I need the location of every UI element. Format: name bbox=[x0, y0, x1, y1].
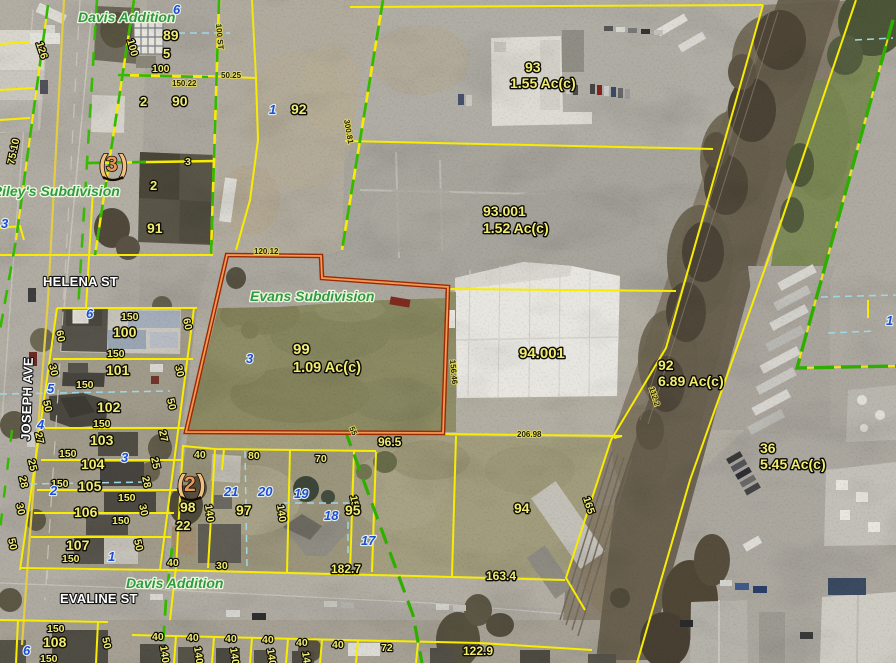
svg-text:107: 107 bbox=[66, 537, 90, 553]
svg-text:91: 91 bbox=[147, 220, 163, 236]
svg-text:96.5: 96.5 bbox=[378, 435, 402, 449]
svg-text:72: 72 bbox=[381, 642, 393, 654]
svg-text:122.9: 122.9 bbox=[463, 644, 493, 658]
svg-text:30: 30 bbox=[216, 560, 228, 572]
svg-text:150: 150 bbox=[112, 515, 130, 527]
svg-text:206.98: 206.98 bbox=[517, 430, 542, 439]
svg-text:140: 140 bbox=[274, 504, 288, 523]
svg-text:17: 17 bbox=[361, 533, 376, 548]
svg-text:105: 105 bbox=[78, 478, 102, 494]
svg-text:100: 100 bbox=[113, 324, 137, 340]
svg-text:2: 2 bbox=[184, 473, 196, 496]
svg-text:Davis Addition: Davis Addition bbox=[126, 575, 224, 591]
svg-text:40: 40 bbox=[225, 633, 237, 645]
svg-text:3: 3 bbox=[246, 351, 254, 366]
svg-text:1: 1 bbox=[269, 102, 276, 117]
svg-text:40: 40 bbox=[194, 449, 206, 461]
svg-text:150: 150 bbox=[93, 418, 111, 430]
svg-text:94.001: 94.001 bbox=[519, 345, 565, 362]
svg-text:150: 150 bbox=[59, 448, 77, 460]
svg-text:90: 90 bbox=[172, 93, 188, 109]
svg-text:150: 150 bbox=[40, 653, 58, 663]
svg-text:20: 20 bbox=[257, 484, 273, 499]
svg-text:102: 102 bbox=[97, 399, 121, 415]
svg-text:92: 92 bbox=[658, 357, 674, 373]
svg-text:3: 3 bbox=[106, 153, 118, 176]
svg-text:120.12: 120.12 bbox=[254, 247, 279, 256]
svg-text:JOSEPH AVE: JOSEPH AVE bbox=[18, 357, 36, 441]
svg-text:50.25: 50.25 bbox=[221, 71, 242, 80]
svg-text:2: 2 bbox=[49, 483, 58, 498]
svg-text:6: 6 bbox=[173, 2, 181, 17]
svg-text:80: 80 bbox=[248, 450, 260, 462]
svg-text:140: 140 bbox=[191, 646, 205, 663]
svg-text:40: 40 bbox=[152, 631, 164, 643]
svg-text:150: 150 bbox=[76, 379, 94, 391]
svg-text:6: 6 bbox=[23, 643, 31, 658]
svg-text:3: 3 bbox=[1, 216, 9, 231]
svg-text:150: 150 bbox=[107, 348, 125, 360]
svg-text:70: 70 bbox=[315, 453, 327, 465]
svg-text:163.4: 163.4 bbox=[486, 569, 516, 583]
svg-text:150: 150 bbox=[118, 492, 136, 504]
svg-text:140: 140 bbox=[299, 651, 313, 663]
svg-text:98: 98 bbox=[180, 499, 196, 515]
svg-text:2: 2 bbox=[140, 94, 147, 109]
svg-text:140: 140 bbox=[227, 647, 241, 663]
svg-text:5: 5 bbox=[47, 381, 55, 396]
svg-text:103: 103 bbox=[90, 432, 114, 448]
svg-text:97: 97 bbox=[236, 502, 252, 518]
svg-text:93: 93 bbox=[525, 59, 541, 75]
svg-text:104: 104 bbox=[81, 456, 105, 472]
svg-text:21: 21 bbox=[223, 484, 238, 499]
svg-text:40: 40 bbox=[167, 557, 179, 569]
svg-text:89: 89 bbox=[163, 27, 179, 43]
svg-text:1: 1 bbox=[886, 313, 893, 328]
svg-text:108: 108 bbox=[43, 634, 67, 650]
svg-text:92: 92 bbox=[291, 101, 307, 117]
svg-text:40: 40 bbox=[296, 637, 308, 649]
svg-text:19: 19 bbox=[294, 486, 309, 501]
svg-text:1.52 Ac(c): 1.52 Ac(c) bbox=[483, 220, 549, 236]
svg-text:94: 94 bbox=[514, 500, 530, 516]
svg-text:140: 140 bbox=[202, 504, 216, 523]
svg-text:95: 95 bbox=[345, 502, 361, 518]
svg-text:40: 40 bbox=[262, 634, 274, 646]
svg-text:Evans Subdivision: Evans Subdivision bbox=[250, 288, 374, 304]
svg-text:3: 3 bbox=[185, 156, 191, 168]
svg-text:3: 3 bbox=[121, 450, 129, 465]
svg-text:HELENA ST: HELENA ST bbox=[43, 274, 118, 289]
svg-text:182.7: 182.7 bbox=[331, 562, 361, 576]
svg-text:4: 4 bbox=[36, 417, 45, 432]
svg-text:1.55 Ac(c): 1.55 Ac(c) bbox=[510, 75, 576, 91]
svg-text:101: 101 bbox=[106, 362, 130, 378]
svg-text:EVALINE ST: EVALINE ST bbox=[60, 591, 138, 606]
svg-text:): ) bbox=[197, 469, 206, 499]
svg-text:5: 5 bbox=[163, 46, 170, 61]
svg-text:22: 22 bbox=[176, 518, 190, 533]
svg-text:140: 140 bbox=[157, 645, 171, 663]
svg-text:Riley's Subdivision: Riley's Subdivision bbox=[0, 183, 120, 199]
svg-text:106: 106 bbox=[74, 504, 98, 520]
svg-text:150: 150 bbox=[62, 553, 80, 565]
svg-text:150: 150 bbox=[121, 311, 139, 323]
svg-text:6.89 Ac(c): 6.89 Ac(c) bbox=[658, 373, 724, 389]
svg-text:100: 100 bbox=[152, 63, 170, 75]
svg-text:): ) bbox=[119, 149, 128, 179]
svg-text:1.09 Ac(c): 1.09 Ac(c) bbox=[293, 360, 361, 376]
svg-text:6: 6 bbox=[86, 306, 94, 321]
svg-text:99: 99 bbox=[293, 341, 310, 358]
svg-text:18: 18 bbox=[324, 508, 339, 523]
svg-text:40: 40 bbox=[187, 632, 199, 644]
svg-text:150.22: 150.22 bbox=[172, 79, 197, 88]
svg-text:36: 36 bbox=[760, 440, 776, 456]
svg-text:140: 140 bbox=[264, 648, 278, 663]
svg-text:2: 2 bbox=[150, 178, 157, 193]
svg-text:40: 40 bbox=[332, 639, 344, 651]
svg-text:93.001: 93.001 bbox=[483, 203, 526, 219]
svg-text:5.45 Ac(c): 5.45 Ac(c) bbox=[760, 456, 826, 472]
svg-text:1: 1 bbox=[108, 549, 115, 564]
svg-text:Davis Addition: Davis Addition bbox=[78, 9, 176, 25]
